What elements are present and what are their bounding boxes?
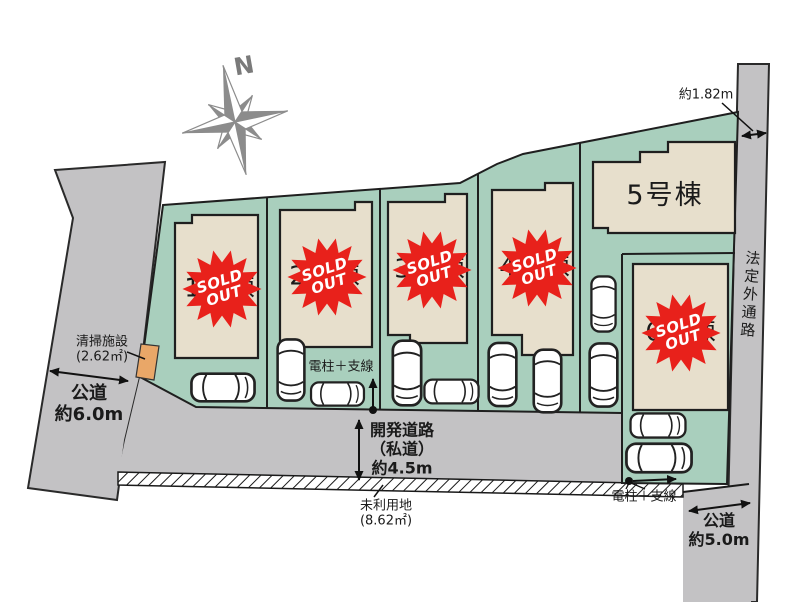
dev-road-line2: （私道） <box>370 441 434 460</box>
setback-label: 約1.82m <box>679 87 734 102</box>
car-lot6-h1 <box>631 413 686 437</box>
dev-road-line1: 開発道路 <box>370 422 434 441</box>
left-road-name: 公道 <box>55 383 124 404</box>
dev-road-label: 開発道路 （私道） 約4.5m <box>370 422 434 479</box>
unused-land-line1: 未利用地 <box>360 499 412 514</box>
car-lot3-h <box>424 380 478 404</box>
pole-right-label: 電柱＋支線 <box>611 489 676 504</box>
sold-out-badge-lot6: SOLD OUT <box>638 290 724 376</box>
utility-pole-left-dot <box>369 406 377 414</box>
left-road-width: 約6.0m <box>55 404 124 425</box>
sold-out-badge-lot1: SOLD OUT <box>179 246 265 332</box>
car-lot56-v1 <box>591 276 615 331</box>
car-lot6-h2 <box>626 444 691 473</box>
car-lot2-h <box>311 382 364 405</box>
sold-out-badge-lot3: SOLD OUT <box>389 227 475 313</box>
car-lot2-v <box>278 339 305 400</box>
unused-land-line2: (8.62㎡) <box>360 514 412 529</box>
car-lot1 <box>191 374 254 402</box>
cleaning-facility-label: 清掃施設 (2.62㎡) <box>76 335 128 366</box>
dev-road-line3: 約4.5m <box>370 459 434 478</box>
pole-left-label: 電柱＋支線 <box>308 359 373 374</box>
left-road-label: 公道 約6.0m <box>55 383 124 425</box>
utility-pole-right-dot <box>625 477 633 485</box>
car-lot4-v2 <box>534 350 562 413</box>
south-road-label: 公道 約5.0m <box>688 512 749 550</box>
south-road-name: 公道 <box>688 512 749 531</box>
car-lot4-v1 <box>489 343 517 406</box>
car-lot56-v2 <box>590 343 618 406</box>
cleaning-facility-line1: 清掃施設 <box>76 335 128 350</box>
car-lot3-v <box>393 341 421 406</box>
site-plan: N 約1.82m 法定外通路 1号棟 2号棟 3号棟 4号棟 5号棟 6号棟 清… <box>0 0 800 602</box>
lot-5-label: 5号棟 <box>626 180 703 212</box>
south-road-width: 約5.0m <box>688 531 749 550</box>
cleaning-facility-line2: (2.62㎡) <box>76 350 128 365</box>
sold-out-badge-lot2: SOLD OUT <box>284 234 370 320</box>
sold-out-badge-lot4: SOLD OUT <box>494 225 580 311</box>
unused-land-label: 未利用地 (8.62㎡) <box>360 499 412 530</box>
